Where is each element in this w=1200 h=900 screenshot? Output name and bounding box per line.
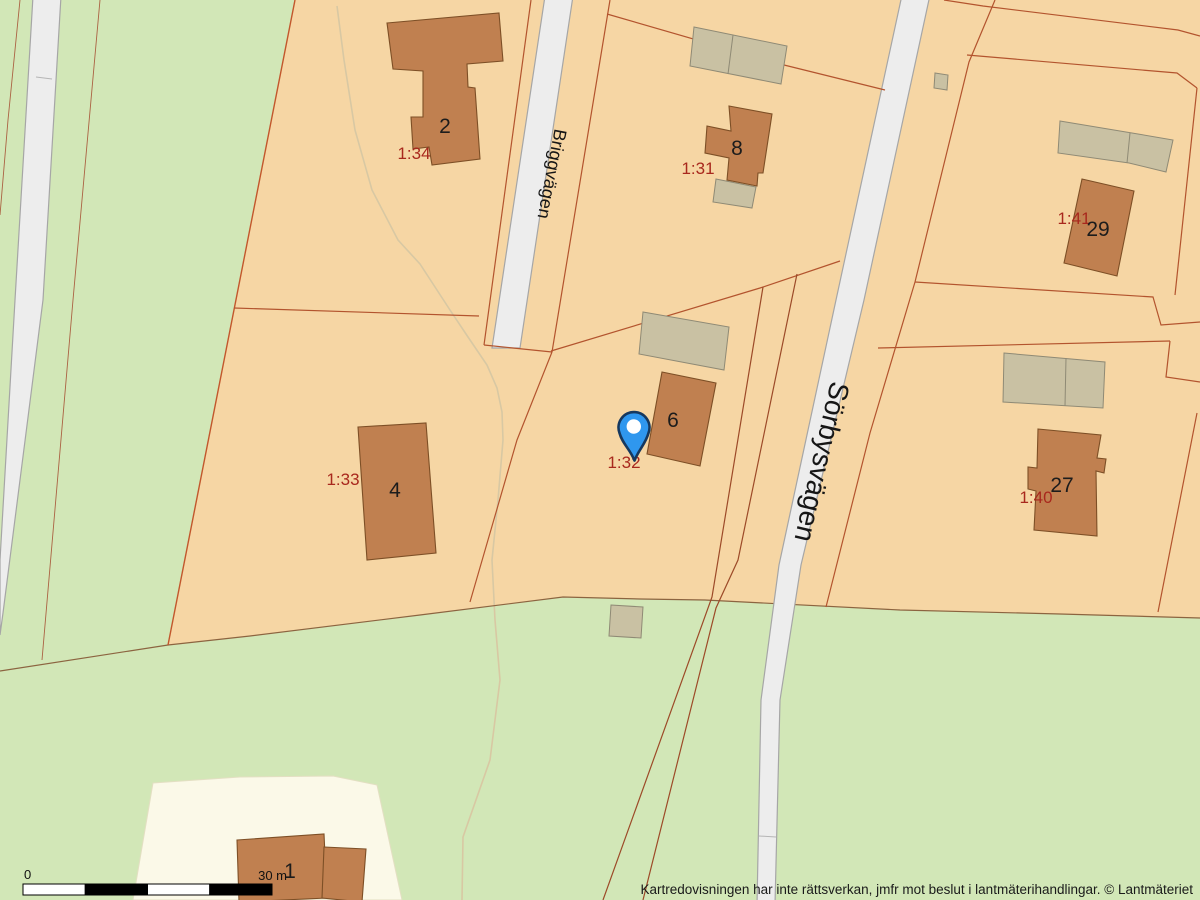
- outbuilding-small-top-right: [934, 73, 948, 90]
- house-number-6: 6: [667, 409, 679, 432]
- outbuilding-in-green: [609, 605, 643, 638]
- building-1-b: [322, 847, 366, 900]
- map-canvas[interactable]: Briggvägen Sörbysvägen 1:34 1:31 1:41 1:…: [0, 0, 1200, 900]
- house-number-8: 8: [731, 137, 743, 160]
- outbuilding-1-40: [1003, 353, 1105, 408]
- cadastral-map: Briggvägen Sörbysvägen 1:34 1:31 1:41 1:…: [0, 0, 1200, 900]
- house-number-29: 29: [1086, 218, 1109, 241]
- scale-zero-label: 0: [24, 867, 31, 882]
- house-number-27: 27: [1050, 474, 1073, 497]
- scale-max-label: 30 m: [258, 868, 287, 883]
- parcel-label-1-33: 1:33: [326, 470, 359, 489]
- house-number-2: 2: [439, 115, 451, 138]
- house-number-4: 4: [389, 479, 401, 502]
- copyright-text: Kartredovisningen har inte rättsverkan, …: [641, 882, 1194, 897]
- parcel-label-1-31: 1:31: [681, 159, 714, 178]
- parcel-label-1-40: 1:40: [1019, 488, 1052, 507]
- parcel-label-1-34: 1:34: [397, 144, 430, 163]
